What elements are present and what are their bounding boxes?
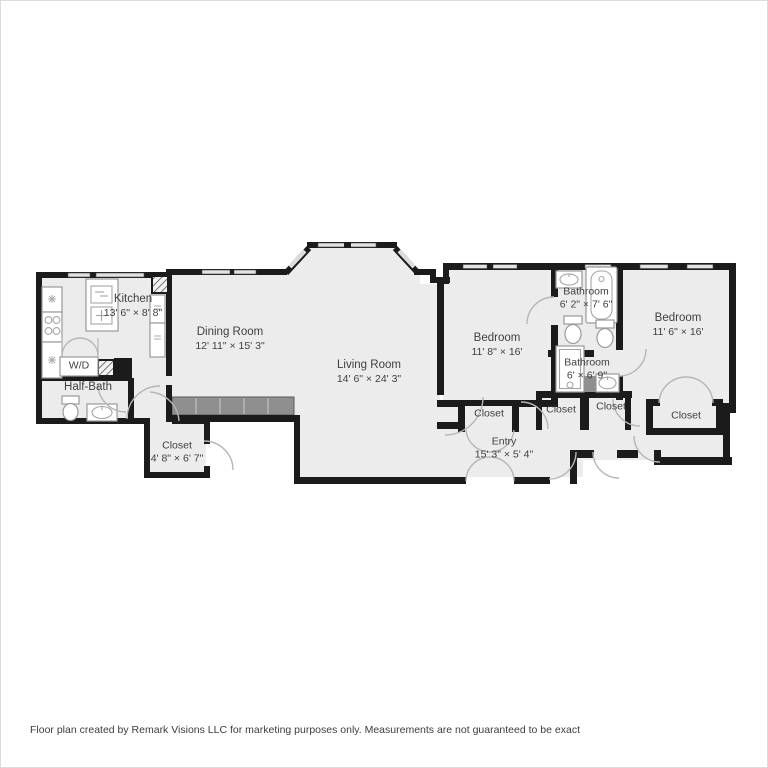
toilet-fixture: [62, 396, 79, 421]
room-label-half-bath: Half-Bath: [64, 381, 112, 395]
bathroom1-toilet-fixture: [564, 316, 582, 344]
floor-plan-page: Kitchen13' 6" × 8' 8" Dining Room12' 11"…: [0, 0, 768, 768]
range-fixture: [42, 312, 62, 342]
sink-fixture: [87, 404, 117, 421]
refrigerator-fixture: [42, 287, 62, 312]
room-label-closet-bedroom1: Closet: [474, 408, 504, 421]
room-label-dining-room: Dining Room12' 11" × 15' 3": [195, 326, 264, 352]
room-label-bedroom-1: Bedroom11' 8" × 16': [471, 332, 522, 358]
room-label-bathroom-2: Bathroom6' × 6' 9": [564, 356, 610, 381]
disclaimer-text: Floor plan created by Remark Visions LLC…: [30, 724, 580, 736]
room-label-closet-bedroom2: Closet: [671, 410, 701, 423]
room-label-closet-hall-a: Closet: [546, 404, 576, 417]
room-label-bathroom-1: Bathroom6' 2" × 7' 6": [560, 285, 613, 310]
room-label-closet-hall-b: Closet: [596, 401, 626, 414]
room-label-hall-closet: Closet4' 8" × 6' 7": [151, 439, 204, 464]
bathroom2-toilet-fixture: [596, 320, 614, 348]
built-in-cabinets: [172, 397, 294, 415]
kitchen-cabinet-fixture: [42, 342, 62, 378]
room-label-kitchen: Kitchen13' 6" × 8' 8": [104, 293, 162, 319]
room-label-entry: Entry15' 3" × 5' 4": [475, 435, 533, 460]
room-label-bedroom-2: Bedroom11' 6" × 16': [652, 312, 703, 338]
room-label-living-room: Living Room14' 6" × 24' 3": [337, 359, 401, 385]
room-label-washer-dryer: W/D: [69, 360, 89, 373]
